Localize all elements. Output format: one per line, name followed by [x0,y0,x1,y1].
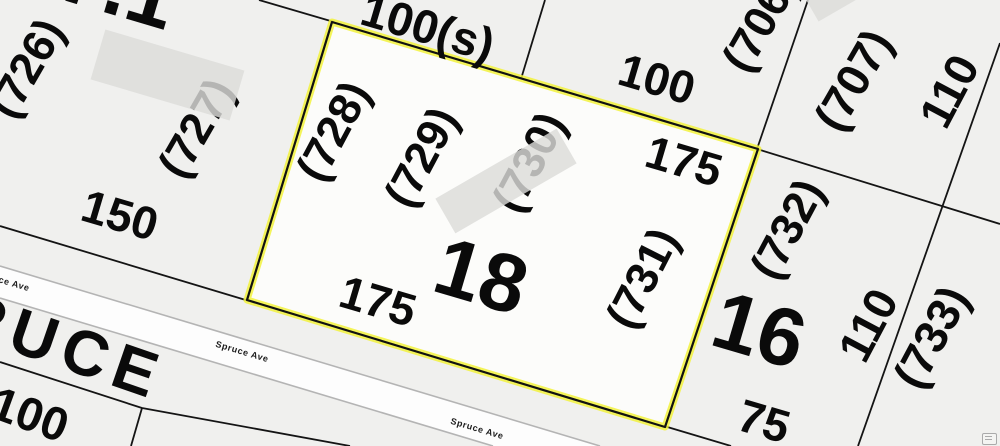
list-icon [982,433,997,445]
map-canvas[interactable]: 7.1 (726) (727) 150 100(s) 100 175 (706)… [0,0,1000,446]
